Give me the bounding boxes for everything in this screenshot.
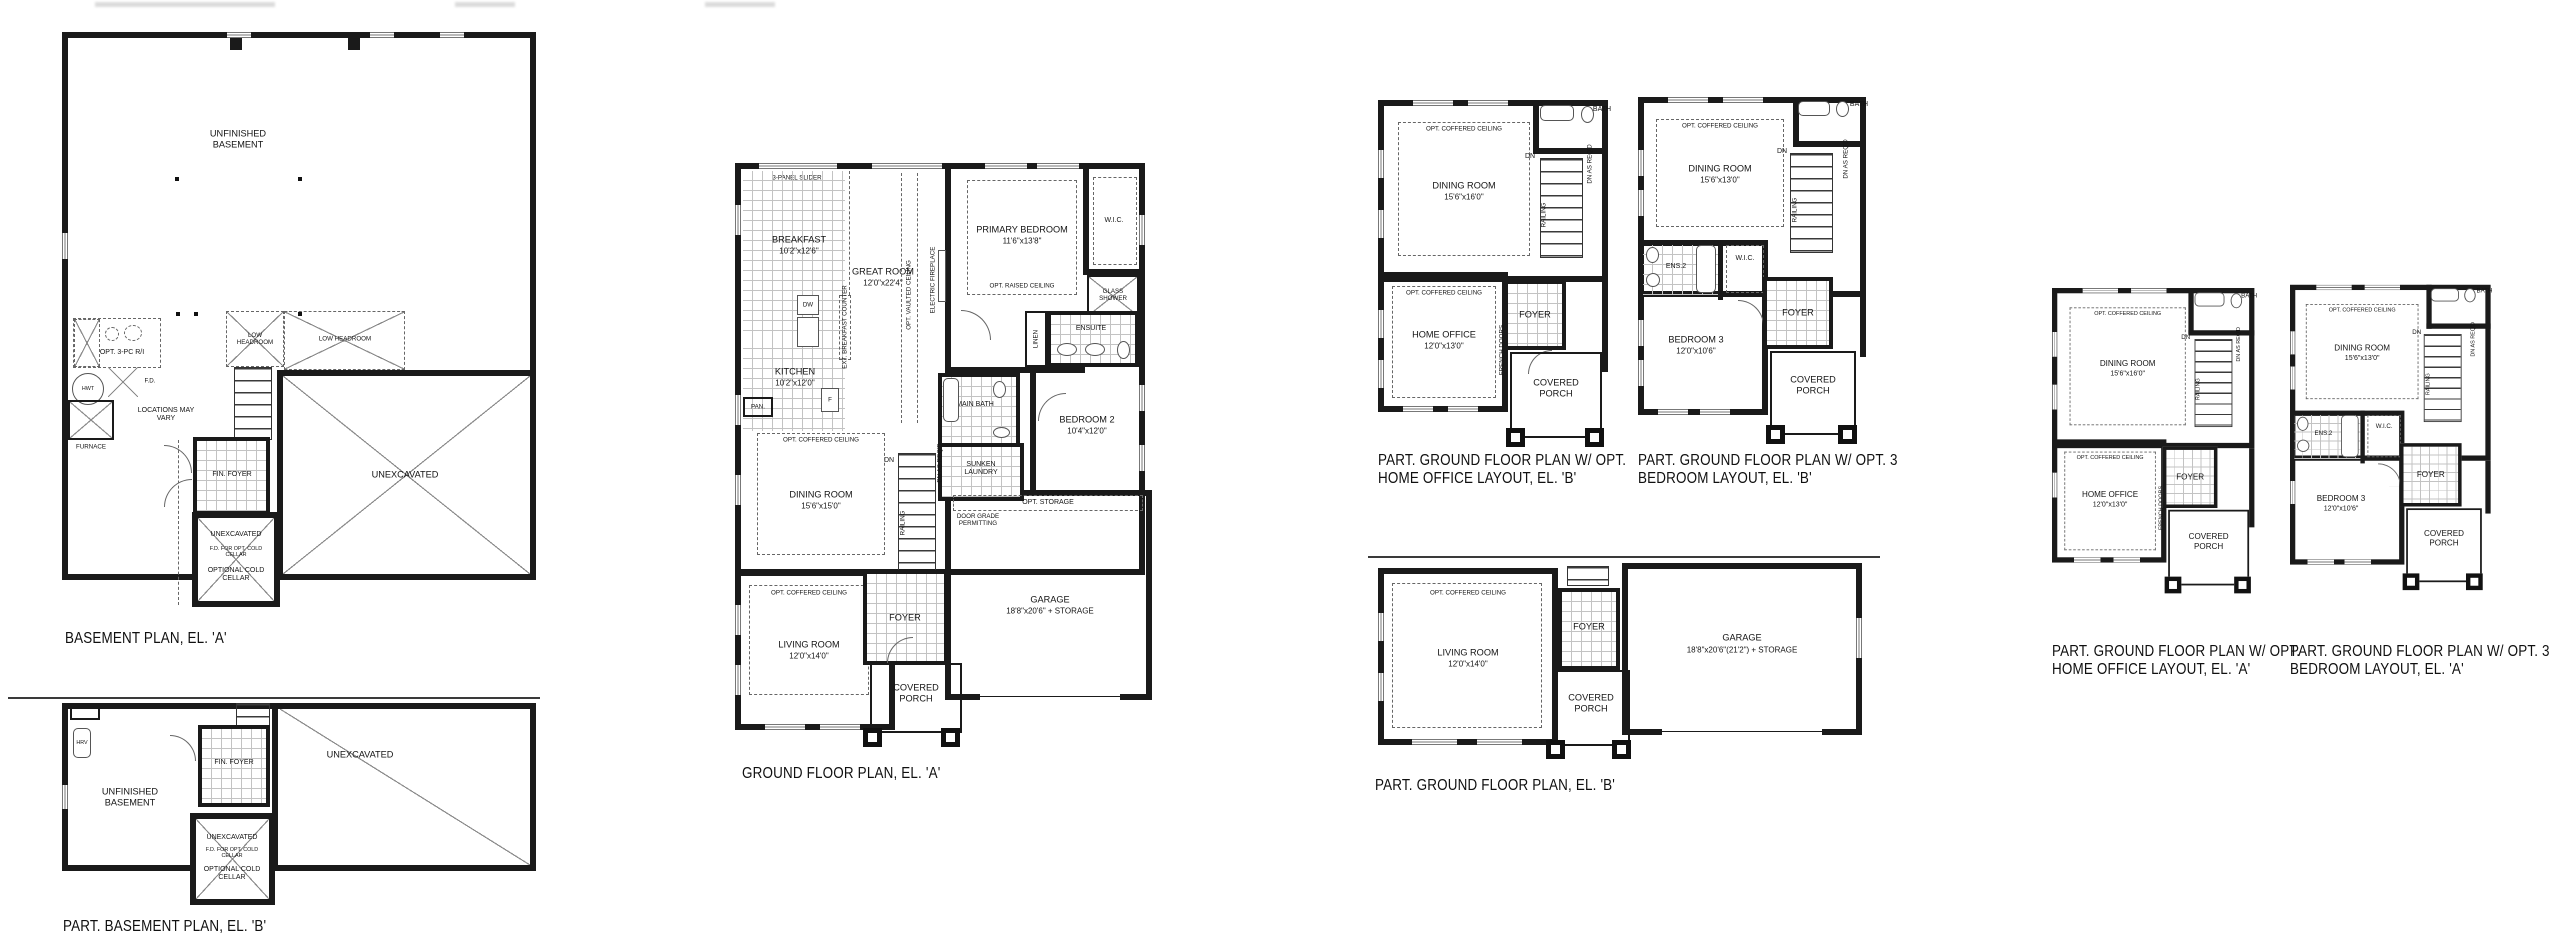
floor-drain-label: F.D. xyxy=(145,377,156,384)
window xyxy=(1448,406,1478,412)
room-dim-great-room: 12'0"x22'4" xyxy=(863,278,902,287)
room-dim-dining: 15'6"x13'0" xyxy=(2345,354,2380,362)
toilet-icon xyxy=(1646,247,1659,263)
hrv-label: HRV xyxy=(76,740,87,746)
sink-icon xyxy=(1646,273,1660,287)
window xyxy=(1700,409,1730,415)
room-dim-garage: 18'8"x20'6"(21'2") + STORAGE xyxy=(1687,645,1798,654)
window xyxy=(820,724,860,730)
fridge-label: F xyxy=(828,396,832,403)
closet-shelving-dashed xyxy=(1726,245,1764,293)
garage-door-opening xyxy=(1662,729,1822,735)
toilet-icon xyxy=(993,381,1006,398)
window xyxy=(2074,557,2100,562)
room-dim-bedroom3: 12'0"x10'6" xyxy=(1676,346,1715,355)
sliding-door xyxy=(759,163,837,169)
window xyxy=(2345,559,2371,564)
window xyxy=(1468,100,1508,106)
cropped-page-header-artifact xyxy=(455,2,515,7)
porch-pillar xyxy=(1585,428,1604,447)
window xyxy=(2052,473,2057,498)
room-label-foyer: FOYER xyxy=(1573,622,1605,633)
window xyxy=(1139,215,1145,245)
exterior-wall xyxy=(1860,297,1866,357)
sink-rough-in-icon xyxy=(124,325,142,341)
room-label-bath: BATH xyxy=(1850,101,1868,109)
window xyxy=(2365,285,2400,290)
window xyxy=(1668,97,1708,103)
room-label-bath: BATH xyxy=(2476,288,2492,295)
room-label-covered-porch: COVERED PORCH xyxy=(886,682,946,703)
room-label-main-bath: MAIN BATH xyxy=(955,401,995,409)
room-dim-home-office: 12'0"x13'0" xyxy=(2093,500,2128,508)
room-label-bath: BATH xyxy=(2241,293,2257,300)
furnace-label: FURNACE xyxy=(76,443,106,450)
bathtub-icon xyxy=(1798,101,1830,116)
floor-plan-sheet: { "plans": { "basement_a": { "title": "B… xyxy=(0,0,2560,947)
room-label-breakfast: BREAKFAST xyxy=(772,235,826,246)
room-dim-living: 12'0"x14'0" xyxy=(1448,659,1487,668)
linen-label: LINEN xyxy=(1032,330,1039,348)
window xyxy=(735,605,741,635)
porch-pillar xyxy=(2403,573,2420,590)
stairs-dn-label: DN xyxy=(884,457,894,465)
window xyxy=(735,475,741,505)
window xyxy=(1037,163,1079,169)
room-label-dining: DINING ROOM xyxy=(2100,359,2156,368)
window xyxy=(62,233,68,259)
window xyxy=(440,32,464,38)
window xyxy=(1139,445,1145,471)
bathtub-icon xyxy=(2195,292,2225,306)
window xyxy=(1856,618,1862,658)
dn-as-reqd-label: DN AS REQ'D xyxy=(2470,322,2476,357)
column-dot xyxy=(175,177,179,181)
room-label-covered-porch: COVERED PORCH xyxy=(2183,532,2234,551)
railing-label: RAILING xyxy=(1791,198,1798,223)
window xyxy=(1413,100,1453,106)
window xyxy=(1378,360,1384,388)
interior-wall xyxy=(1533,148,1608,154)
mechanical-unit xyxy=(70,706,100,720)
window xyxy=(1403,406,1433,412)
bathtub-icon xyxy=(1696,245,1716,293)
vaulted-ceiling-dashed xyxy=(917,173,918,423)
window xyxy=(2290,481,2295,504)
garage-door-opening xyxy=(980,694,1120,700)
room-label-bedroom3: BEDROOM 3 xyxy=(2317,494,2366,503)
porch-pillar xyxy=(1506,428,1525,447)
window xyxy=(2052,332,2057,357)
garage-door-line xyxy=(1662,731,1822,732)
room-label-dining: DINING ROOM xyxy=(1688,164,1751,175)
room-label-covered-porch: COVERED PORCH xyxy=(1784,374,1842,395)
sink-icon xyxy=(993,427,1010,438)
toilet-rough-in-icon xyxy=(105,327,119,341)
room-dim-kitchen: 10'2"x12'0" xyxy=(775,378,814,387)
room-label-cold-cellar: OPTIONAL COLD CELLAR xyxy=(198,866,266,882)
dn-as-reqd-label: DN AS REQ'D xyxy=(1586,144,1593,183)
exterior-wall xyxy=(1602,282,1608,372)
room-label-kitchen: KITCHEN xyxy=(775,367,815,378)
bathtub-icon xyxy=(1540,105,1574,121)
railing-label: RAILING xyxy=(1540,203,1547,228)
room-label-dining: DINING ROOM xyxy=(789,490,852,501)
window xyxy=(1378,613,1384,641)
electric-fireplace-label: ELECTRIC FIREPLACE xyxy=(929,247,936,314)
porch-pillar xyxy=(863,728,882,747)
room-label-unexcavated: UNEXCAVATED xyxy=(327,750,394,761)
plan-title-line2: HOME OFFICE LAYOUT, EL. 'B' xyxy=(1378,470,1576,488)
locations-vary-note: LOCATIONS MAY VARY xyxy=(135,407,197,423)
room-label-wic: W.I.C. xyxy=(2376,424,2393,431)
room-label-covered-porch: COVERED PORCH xyxy=(1527,377,1585,398)
room-label-unfinished-basement: UNFINISHED BASEMENT xyxy=(91,786,169,807)
plan-part-ground-home-office-el-b: BATH OPT. COFFERED CEILING DINING ROOM 1… xyxy=(1378,100,1638,490)
dishwasher-label: DW xyxy=(803,301,813,308)
plan-part-ground-3-bedroom-el-b: BATH OPT. COFFERED CEILING DINING ROOM 1… xyxy=(1638,95,1893,490)
room-label-opt-3pc: OPT. 3-PC R/I xyxy=(99,349,145,357)
plan-part-ground-home-office-el-a: BATH OPT. COFFERED CEILING DINING ROOM 1… xyxy=(2052,288,2312,683)
door-grade-note: DOOR GRADE PERMITTING xyxy=(955,513,1001,527)
window xyxy=(2131,288,2166,293)
room-label-home-office: HOME OFFICE xyxy=(1412,330,1476,341)
room-label-ens2: ENS.2 xyxy=(1666,263,1686,271)
cc-unexcavated-label: UNEXCAVATED xyxy=(207,834,258,842)
room-label-covered-porch: COVERED PORCH xyxy=(2418,529,2469,548)
room-label-foyer: FOYER xyxy=(2417,470,2445,479)
room-label-foyer: FOYER xyxy=(2176,473,2204,482)
stairs-dn-label: DN xyxy=(2412,330,2421,337)
porch-pillar xyxy=(1546,740,1565,759)
plan-title: PART. GROUND FLOOR PLAN, EL. 'B' xyxy=(1375,777,1615,795)
interior-wall xyxy=(2188,288,2193,334)
room-dim-dining: 15'6"x15'0" xyxy=(801,501,840,510)
sink-icon xyxy=(1085,343,1105,356)
ext-counter-label: EXT. BREAKFAST COUNTER xyxy=(841,285,848,368)
toilet-icon xyxy=(2464,288,2475,302)
kitchen-island xyxy=(797,317,819,347)
porch-pillar xyxy=(1766,425,1785,444)
opt-vaulted-label: OPT. VAULTED CEILING xyxy=(905,260,912,330)
room-dim-breakfast: 10'2"x12'6" xyxy=(779,246,818,255)
plan-title-line2: BEDROOM LAYOUT, EL. 'A' xyxy=(2290,661,2464,679)
cc-floor-drain-note: F.D. FOR OPT. COLD CELLAR xyxy=(203,847,261,859)
porch-pillar xyxy=(1612,740,1631,759)
opt-coffered-label: OPT. COFFERED CEILING xyxy=(1682,122,1758,129)
interior-wall xyxy=(1718,240,1723,300)
window xyxy=(1412,739,1457,745)
cc-unexcavated-label: UNEXCAVATED xyxy=(211,531,262,539)
interior-wall xyxy=(2188,330,2254,335)
room-label-unexcavated: UNEXCAVATED xyxy=(372,470,439,481)
toilet-icon xyxy=(2297,417,2308,431)
window xyxy=(1638,320,1644,346)
opt-coffered-label: OPT. COFFERED CEILING xyxy=(1430,589,1506,596)
room-label-sunken-laundry: SUNKEN LAUNDRY xyxy=(954,461,1008,477)
plan-cut-line xyxy=(8,697,540,699)
window xyxy=(2290,331,2295,354)
opt-coffered-label: OPT. COFFERED CEILING xyxy=(771,589,847,596)
opt-coffered-label: OPT. COFFERED CEILING xyxy=(1426,125,1502,132)
plan-title: PART. BASEMENT PLAN, EL. 'B' xyxy=(63,918,266,936)
plan-title-line2: BEDROOM LAYOUT, EL. 'B' xyxy=(1638,470,1812,488)
porch-pillar xyxy=(1838,425,1857,444)
plan-part-basement-el-b: HRV UNFINISHED BASEMENT UP FIN. FOYER UN… xyxy=(60,700,560,947)
plan-ground-floor-el-a: 3-PANEL SLIDER BREAKFAST 10'2"x12'6" KIT… xyxy=(735,145,1185,800)
opt-raised-ceiling-label: OPT. RAISED CEILING xyxy=(990,282,1055,289)
window xyxy=(1658,409,1688,415)
exterior-wall xyxy=(2485,461,2490,514)
room-dim-living: 12'0"x14'0" xyxy=(789,651,828,660)
sink-icon xyxy=(2297,440,2309,452)
cc-floor-drain-note: F.D. FOR OPT. COLD CELLAR xyxy=(206,546,266,558)
window xyxy=(1378,210,1384,238)
interior-wall xyxy=(2360,411,2364,464)
wall-pier xyxy=(348,38,360,50)
room-label-bedroom2: BEDROOM 2 xyxy=(1059,415,1114,426)
plan-part-ground-el-b: OPT. COFFERED CEILING LIVING ROOM 12'0"x… xyxy=(1372,563,1882,803)
plan-title-line1: PART. GROUND FLOOR PLAN W/ OPT. xyxy=(2052,643,2300,661)
interior-wall xyxy=(1030,373,1036,490)
unexcavated-area xyxy=(280,709,530,865)
room-label-garage: GARAGE xyxy=(1722,633,1761,644)
room-label-bedroom3: BEDROOM 3 xyxy=(1668,335,1723,346)
low-headroom-label: LOW HEADROOM xyxy=(319,335,371,342)
dn-as-reqd-label: DN AS REQ'D xyxy=(936,443,943,482)
window xyxy=(2114,557,2140,562)
window xyxy=(1378,673,1384,701)
low-headroom-label: LOW HEADROOM xyxy=(233,332,277,346)
room-label-living: LIVING ROOM xyxy=(1437,648,1498,659)
room-dim-dining: 15'6"x16'0" xyxy=(1444,192,1483,201)
room-label-foyer: FOYER xyxy=(1519,310,1551,321)
room-dim-home-office: 12'0"x13'0" xyxy=(1424,341,1463,350)
electric-fireplace-icon xyxy=(938,250,946,302)
stairs xyxy=(1567,566,1609,586)
room-label-cold-cellar: OPTIONAL COLD CELLAR xyxy=(201,567,271,583)
porch-pillar xyxy=(2234,577,2251,594)
closet-shelving-dashed xyxy=(2367,415,2400,457)
window xyxy=(2052,385,2057,410)
window xyxy=(1378,310,1384,338)
window xyxy=(1638,360,1644,386)
interior-wall xyxy=(1793,141,1866,147)
room-dim-bedroom2: 10'4"x12'0" xyxy=(1067,426,1106,435)
window xyxy=(985,163,1027,169)
plan-title: GROUND FLOOR PLAN, EL. 'A' xyxy=(742,765,940,783)
stairs-dn-label: DN xyxy=(1777,148,1787,156)
column-dot xyxy=(298,177,302,181)
toilet-icon xyxy=(1117,341,1130,359)
room-separation-dashed xyxy=(849,171,850,295)
wall-pier xyxy=(230,38,242,50)
sink-icon xyxy=(1057,343,1077,356)
room-dim-dining: 15'6"x16'0" xyxy=(2110,369,2145,377)
porch-pillar xyxy=(2466,573,2483,590)
dn-as-reqd-label: DN AS REQ'D xyxy=(2235,327,2241,362)
room-label-garage: GARAGE xyxy=(1030,595,1069,606)
room-label-dining: DINING ROOM xyxy=(2334,343,2390,352)
room-label-unfinished-basement: UNFINISHED BASEMENT xyxy=(199,128,277,149)
toilet-icon xyxy=(1836,101,1849,117)
room-dim-dining: 15'6"x13'0" xyxy=(1700,175,1739,184)
room-label-foyer: FOYER xyxy=(1782,308,1814,319)
plan-title: BASEMENT PLAN, EL. 'A' xyxy=(65,630,227,648)
window xyxy=(1139,385,1145,411)
room-dim-bedroom3: 12'0"x10'6" xyxy=(2324,504,2359,512)
window xyxy=(872,163,942,169)
stairs-dn-label: DN xyxy=(1525,153,1535,161)
porch-pillar xyxy=(941,728,960,747)
column-dot xyxy=(176,312,180,316)
room-label-wic: W.I.C. xyxy=(1735,255,1754,263)
interior-wall xyxy=(1533,100,1539,152)
glass-shower-label: GLASS SHOWER xyxy=(1094,288,1132,302)
room-label-bath: BATH xyxy=(1593,106,1611,114)
window xyxy=(62,785,68,809)
exterior-wall xyxy=(2249,448,2254,527)
window xyxy=(1477,739,1522,745)
porch-pillar xyxy=(2165,577,2182,594)
room-label-fin-foyer: FIN. FOYER xyxy=(210,471,254,479)
plan-title-line1: PART. GROUND FLOOR PLAN W/ OPT. 3 xyxy=(2290,643,2550,661)
opt-storage-label: OPT. STORAGE xyxy=(1022,499,1074,507)
window xyxy=(735,205,741,235)
room-label-dining: DINING ROOM xyxy=(1432,181,1495,192)
opt-coffered-label: OPT. COFFERED CEILING xyxy=(2329,307,2396,313)
plan-part-ground-3-bedroom-el-a: BATH OPT. COFFERED CEILING DINING ROOM 1… xyxy=(2290,283,2545,683)
stairs-up xyxy=(234,367,272,440)
room-dim-garage: 18'8"x20'6" + STORAGE xyxy=(1006,606,1094,615)
room-label-living: LIVING ROOM xyxy=(778,640,839,651)
furnace-icon xyxy=(68,400,114,440)
room-label-covered-porch: COVERED PORCH xyxy=(1563,692,1619,713)
opt-coffered-label: OPT. COFFERED CEILING xyxy=(783,436,859,443)
bathtub-icon xyxy=(2341,415,2359,457)
window xyxy=(2290,367,2295,390)
pantry-label: PAN. xyxy=(751,403,765,410)
railing-label: RAILING xyxy=(2195,378,2201,400)
window xyxy=(2083,288,2118,293)
opt-coffered-label: OPT. COFFERED CEILING xyxy=(2094,310,2161,316)
window xyxy=(370,32,394,38)
window xyxy=(735,665,741,695)
window xyxy=(2308,559,2334,564)
dn-as-reqd-label: DN AS REQ'D xyxy=(1842,139,1849,178)
railing-label: RAILING xyxy=(2425,373,2431,395)
window xyxy=(1638,150,1644,176)
room-dim-primary-bedroom: 11'6"x13'8" xyxy=(1003,236,1042,245)
opt-coffered-label: OPT. COFFERED CEILING xyxy=(2077,455,2144,461)
stairs-dn-label: DN xyxy=(2181,335,2190,342)
cropped-page-header-artifact xyxy=(705,2,775,7)
room-label-ensuite: ENSUITE xyxy=(1076,325,1106,333)
interior-wall xyxy=(2426,323,2490,328)
plan-title-line1: PART. GROUND FLOOR PLAN W/ OPT. xyxy=(1378,452,1626,470)
foundation-dashed-line xyxy=(178,440,179,605)
optional-shower-rough-in xyxy=(74,319,100,367)
plan-title-line2: HOME OFFICE LAYOUT, EL. 'A' xyxy=(2052,661,2250,679)
railing-label: RAILING xyxy=(899,511,906,536)
vaulted-ceiling-dashed xyxy=(901,173,902,423)
bathtub-icon xyxy=(2431,288,2459,301)
column-dot xyxy=(194,312,198,316)
room-label-ens2: ENS.2 xyxy=(2315,431,2333,438)
window xyxy=(1723,97,1763,103)
interior-wall xyxy=(1083,163,1089,275)
window xyxy=(1638,190,1644,216)
window xyxy=(765,724,805,730)
window xyxy=(735,395,741,425)
window xyxy=(2316,285,2351,290)
room-label-foyer: FOYER xyxy=(889,613,921,624)
room-label-primary-bedroom: PRIMARY BEDROOM xyxy=(976,225,1068,236)
room-label-home-office: HOME OFFICE xyxy=(2082,490,2138,499)
plan-basement-el-a: UNFINISHED BASEMENT OPT. 3-PC R/I HWT F.… xyxy=(60,15,560,665)
cold-cellar-area xyxy=(192,512,280,607)
hwt-label: HWT xyxy=(82,386,94,392)
opt-coffered-label: OPT. COFFERED CEILING xyxy=(1406,289,1482,296)
floor-drain-icon xyxy=(108,367,138,397)
room-label-fin-foyer: FIN. FOYER xyxy=(212,759,256,767)
garage-door-line xyxy=(980,696,1120,697)
window xyxy=(1378,150,1384,178)
bathtub-icon xyxy=(943,378,959,422)
plan-title-line1: PART. GROUND FLOOR PLAN W/ OPT. 3 xyxy=(1638,452,1898,470)
room-label-wic: W.I.C. xyxy=(1104,217,1123,225)
cropped-page-header-artifact xyxy=(95,2,275,7)
plan-cut-line xyxy=(1368,556,1880,558)
